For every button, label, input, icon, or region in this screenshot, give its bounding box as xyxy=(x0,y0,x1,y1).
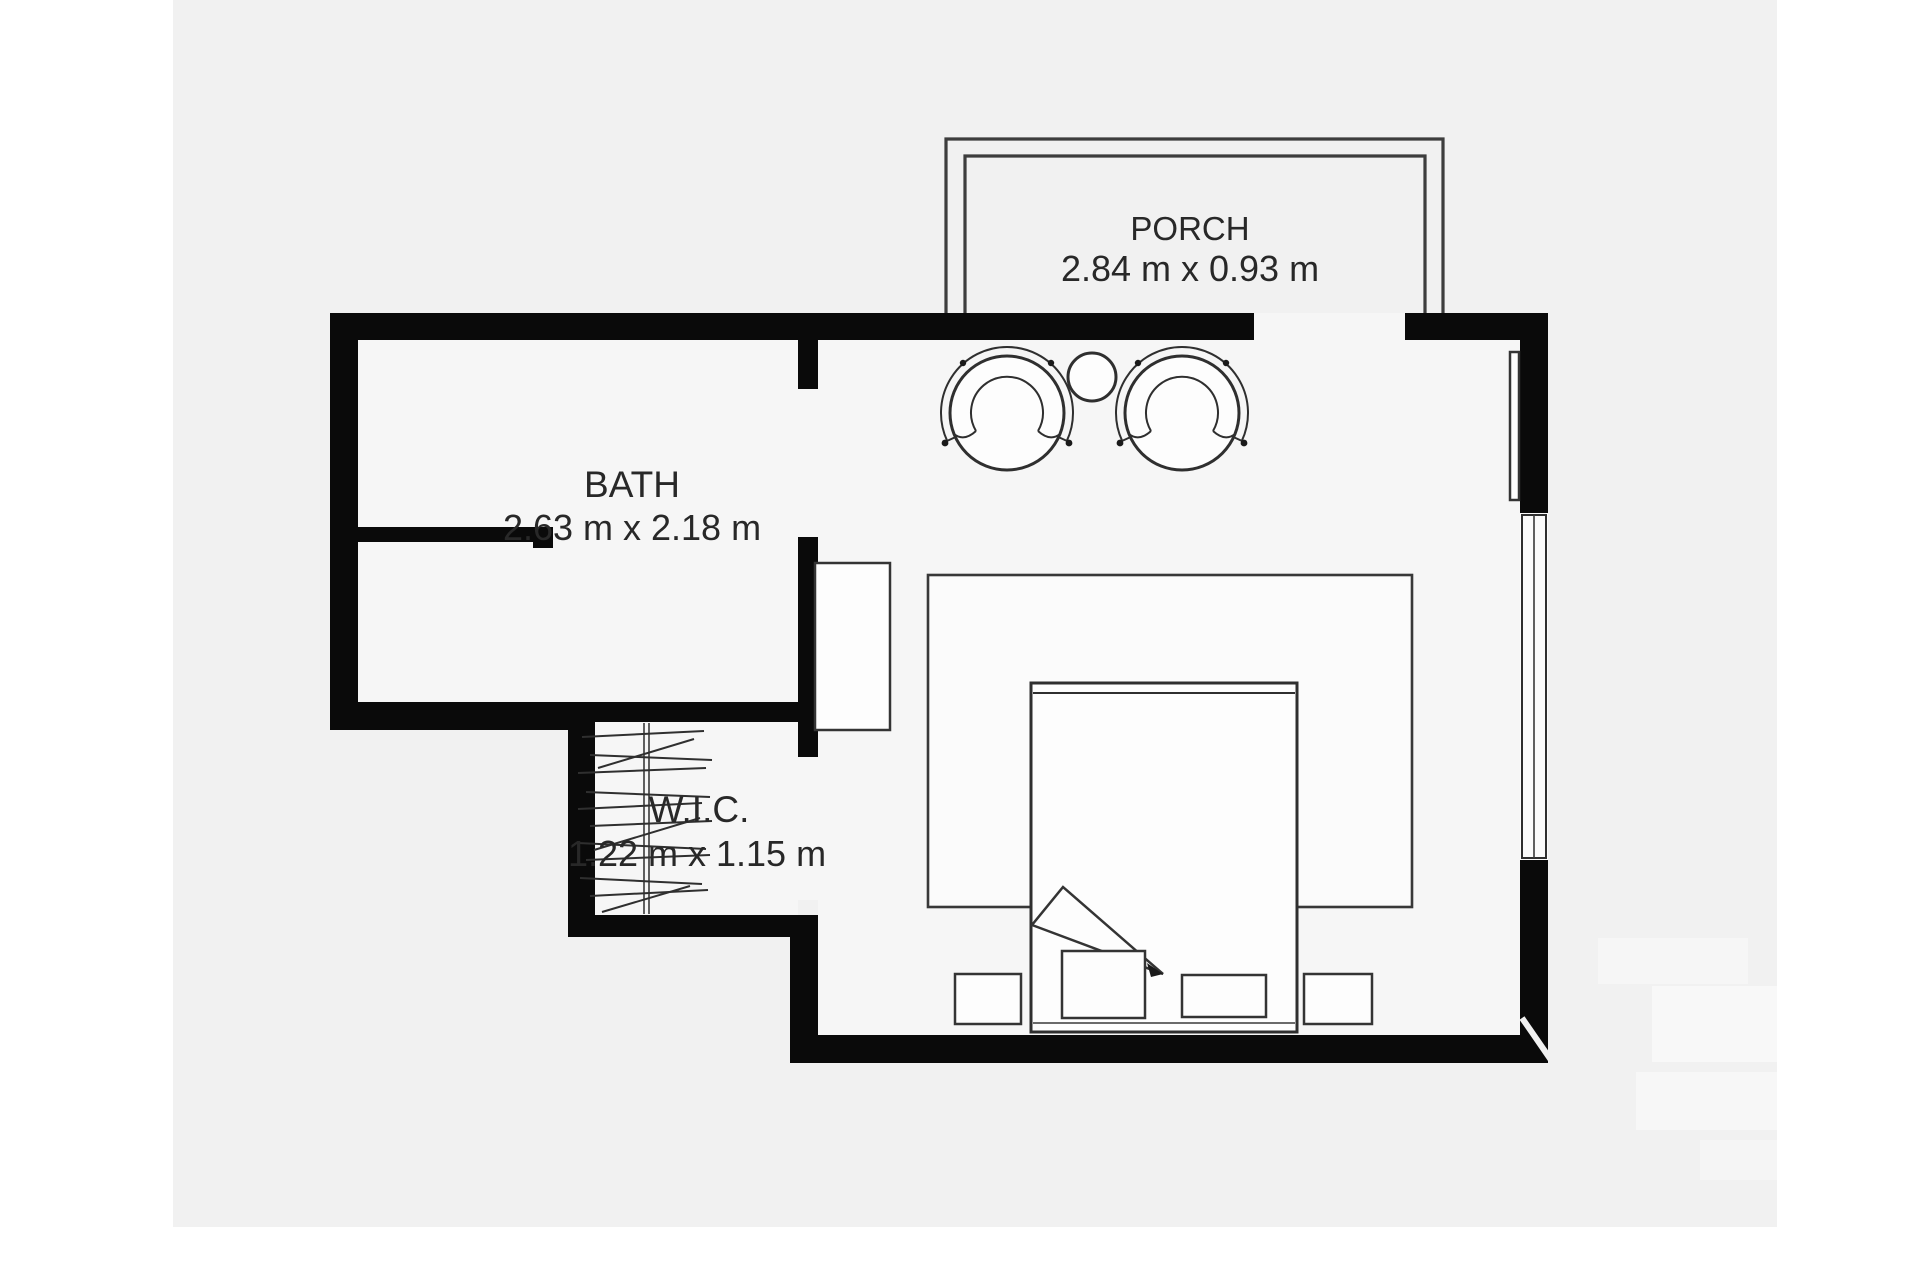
floor-plan-page: PORCH 2.84 m x 0.93 m BATH 2.63 m x 2.18… xyxy=(0,0,1920,1280)
wall-wic-top xyxy=(595,702,798,722)
wic-dimensions-label: 1.22 m x 1.15 m xyxy=(568,833,826,874)
porch-dimensions-label: 2.84 m x 0.93 m xyxy=(1061,248,1319,289)
wall-right-upper xyxy=(1520,313,1548,513)
wall-left xyxy=(330,313,358,730)
wall-wic-bottom xyxy=(568,915,798,937)
floor-cushion-icon xyxy=(1182,975,1266,1017)
wall-mirror-icon xyxy=(1510,352,1519,500)
wic-room-label: W.I.C. xyxy=(649,789,750,830)
dresser-icon xyxy=(815,563,890,730)
wall-divider-stub-top xyxy=(798,340,818,389)
floor-cushion-icon xyxy=(955,974,1021,1024)
round-side-table-icon xyxy=(1068,353,1116,401)
wic-door-opening xyxy=(798,757,818,900)
wall-top-left-segment xyxy=(330,313,1254,340)
window-icon xyxy=(1520,513,1548,860)
floor-cushion-icon xyxy=(1304,974,1372,1024)
wall-bath-south xyxy=(330,702,593,730)
floor-cushion-icon xyxy=(1062,951,1145,1018)
bath-room-label: BATH xyxy=(584,464,680,505)
wall-bottom xyxy=(798,1035,1548,1063)
porch-room-label: PORCH xyxy=(1130,210,1249,247)
floor-plan-drawing: PORCH 2.84 m x 0.93 m BATH 2.63 m x 2.18… xyxy=(0,0,1920,1280)
bath-door-opening xyxy=(798,389,818,537)
bath-dimensions-label: 2.63 m x 2.18 m xyxy=(503,507,761,548)
porch-door-opening xyxy=(1254,313,1405,340)
